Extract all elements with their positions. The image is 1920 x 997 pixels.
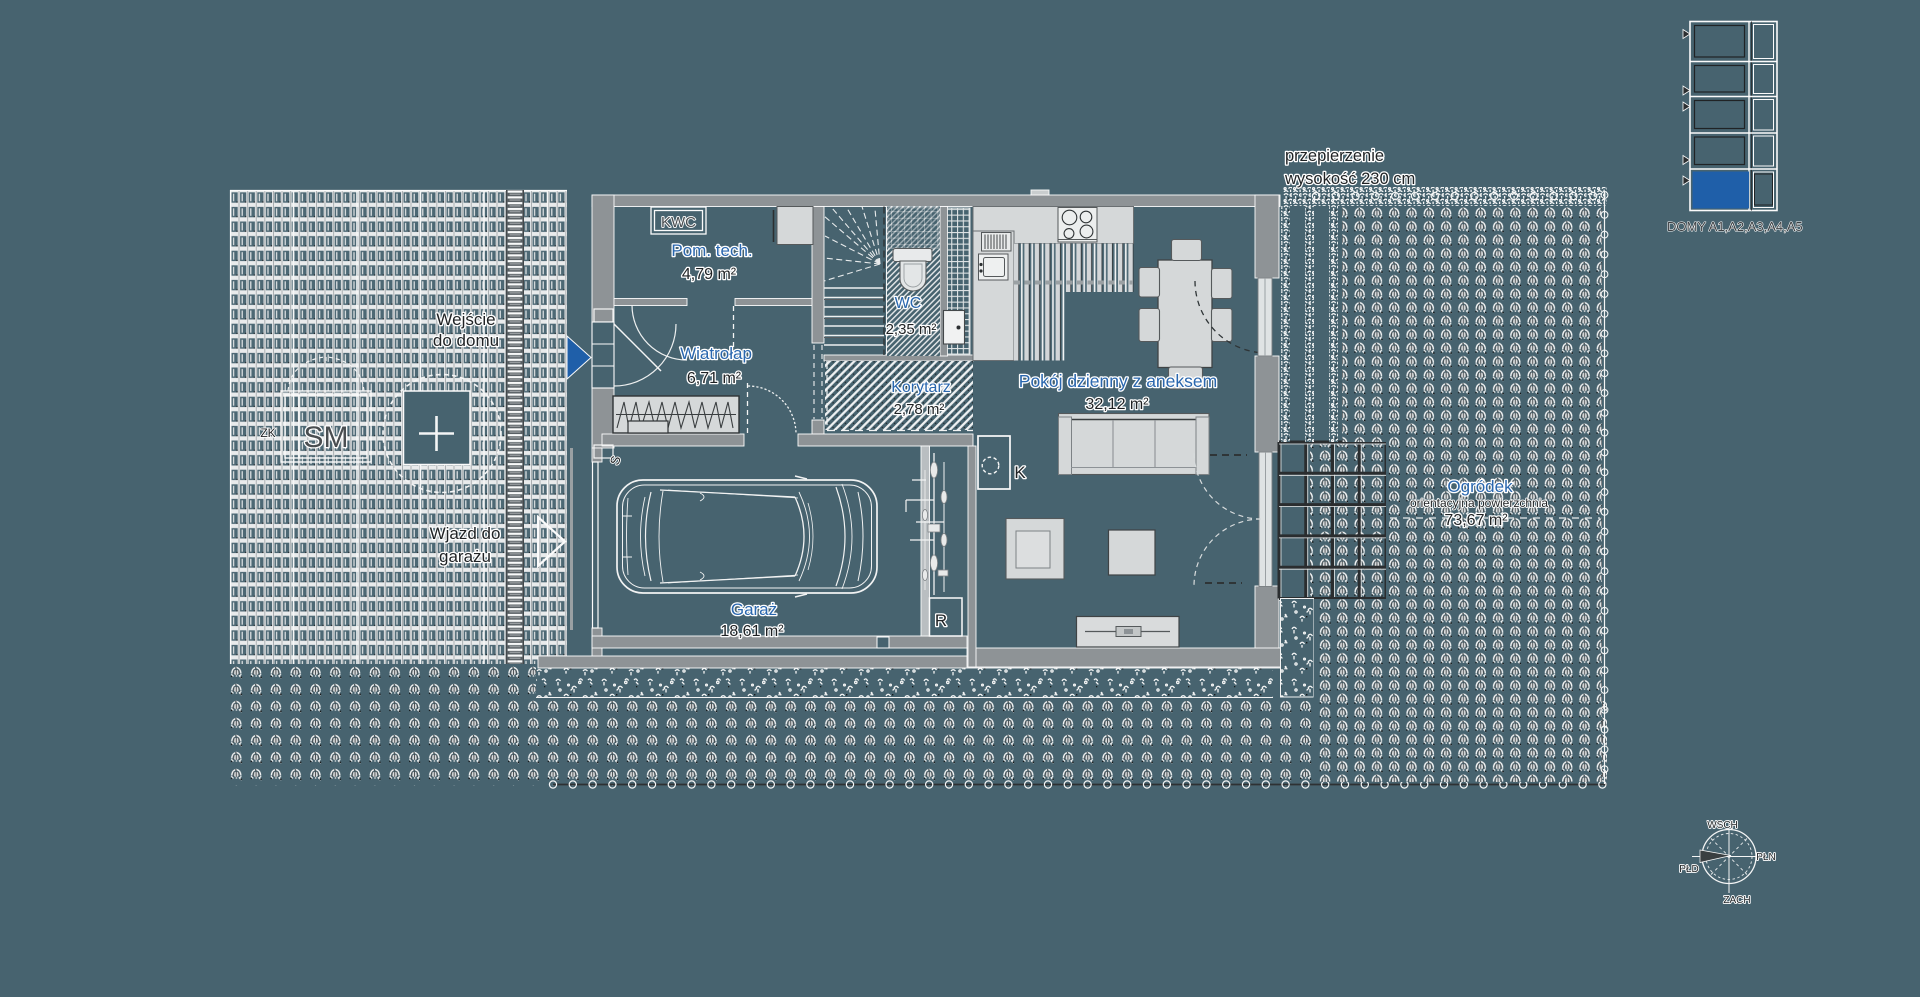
svg-text:73,67 m²: 73,67 m² <box>1444 512 1508 529</box>
svg-text:PŁD: PŁD <box>1679 864 1698 875</box>
svg-text:6,71 m²: 6,71 m² <box>687 370 742 387</box>
svg-text:ZK: ZK <box>260 426 275 440</box>
svg-text:KWC: KWC <box>661 214 696 231</box>
svg-text:32,12 m²: 32,12 m² <box>1085 396 1149 413</box>
svg-text:Pom. tech.: Pom. tech. <box>671 241 752 260</box>
svg-text:Wjazd do: Wjazd do <box>430 524 501 543</box>
svg-text:orientacyjna powierzchnia: orientacyjna powierzchnia <box>1410 496 1548 510</box>
svg-text:do domu: do domu <box>433 331 499 350</box>
svg-text:Korytarz: Korytarz <box>891 379 951 396</box>
svg-text:wysokość 230 cm: wysokość 230 cm <box>1284 170 1415 188</box>
svg-text:DOMY A1,A2,A3,A4,A5: DOMY A1,A2,A3,A4,A5 <box>1667 219 1803 234</box>
svg-text:WSCH: WSCH <box>1707 820 1738 831</box>
svg-text:2,35 m²: 2,35 m² <box>886 321 937 338</box>
svg-text:Pokój dzienny z aneksem: Pokój dzienny z aneksem <box>1019 371 1217 391</box>
svg-text:Garaż: Garaż <box>731 600 777 619</box>
svg-text:18,61 m²: 18,61 m² <box>720 623 784 640</box>
svg-text:Wejście: Wejście <box>436 310 495 329</box>
svg-text:ZACH: ZACH <box>1723 895 1750 906</box>
svg-text:4,79 m²: 4,79 m² <box>682 266 737 283</box>
svg-text:K: K <box>1014 463 1026 482</box>
svg-text:PŁN: PŁN <box>1756 852 1775 863</box>
svg-text:Ogródek: Ogródek <box>1447 477 1513 496</box>
svg-text:SM: SM <box>304 421 349 454</box>
svg-text:Wiatrołap: Wiatrołap <box>680 344 752 363</box>
svg-text:przepierzenie: przepierzenie <box>1285 147 1384 165</box>
svg-text:garażu: garażu <box>439 547 491 566</box>
svg-text:2,78 m²: 2,78 m² <box>894 401 945 418</box>
svg-text:R: R <box>935 611 947 630</box>
svg-text:WC: WC <box>895 295 922 312</box>
